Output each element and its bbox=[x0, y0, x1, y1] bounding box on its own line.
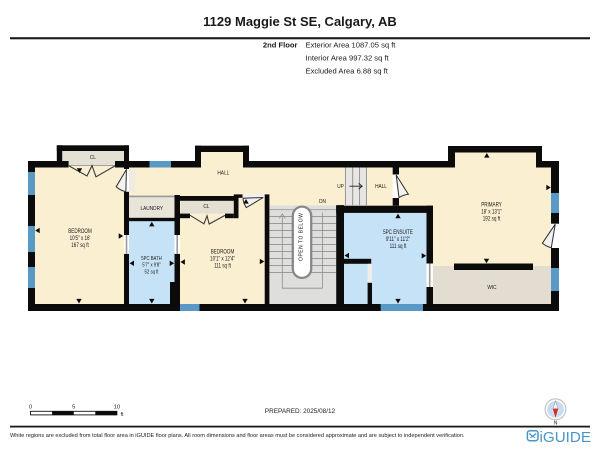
svg-text:CL: CL bbox=[90, 155, 96, 161]
svg-text:10: 10 bbox=[114, 405, 120, 411]
svg-text:N: N bbox=[554, 420, 558, 426]
svg-text:52 sq ft: 52 sq ft bbox=[145, 269, 159, 276]
svg-text:UP: UP bbox=[337, 184, 344, 190]
svg-text:iGUIDE: iGUIDE bbox=[540, 429, 591, 446]
svg-text:BEDROOM: BEDROOM bbox=[211, 249, 234, 256]
svg-text:192 sq ft: 192 sq ft bbox=[483, 216, 501, 223]
svg-text:0: 0 bbox=[29, 405, 32, 411]
svg-text:LAUNDRY: LAUNDRY bbox=[141, 206, 164, 212]
svg-text:HALL: HALL bbox=[375, 184, 387, 190]
svg-text:PREPARED: 2025/08/12: PREPARED: 2025/08/12 bbox=[265, 408, 336, 415]
svg-text:5: 5 bbox=[72, 405, 75, 411]
svg-text:10'5" x 16': 10'5" x 16' bbox=[70, 235, 91, 242]
svg-text:White regions are excluded fro: White regions are excluded from total fl… bbox=[10, 433, 465, 439]
svg-text:5PC BATH: 5PC BATH bbox=[141, 255, 162, 262]
svg-text:HALL: HALL bbox=[217, 170, 229, 176]
svg-text:1129 Maggie St SE, Calgary, AB: 1129 Maggie St SE, Calgary, AB bbox=[203, 14, 397, 29]
svg-text:WIC: WIC bbox=[487, 285, 497, 291]
svg-text:18' x 13'1": 18' x 13'1" bbox=[481, 209, 502, 216]
svg-text:PRIMARY: PRIMARY bbox=[481, 202, 502, 209]
svg-text:BEDROOM: BEDROOM bbox=[68, 228, 91, 235]
svg-text:Interior Area 997.32 sq ft: Interior Area 997.32 sq ft bbox=[306, 54, 390, 63]
svg-text:Exterior Area 1087.05 sq ft: Exterior Area 1087.05 sq ft bbox=[306, 41, 397, 50]
svg-text:10'1" x 12'4": 10'1" x 12'4" bbox=[210, 256, 235, 263]
svg-text:Excluded Area 6.88 sq ft: Excluded Area 6.88 sq ft bbox=[306, 67, 389, 76]
svg-text:111 sq ft: 111 sq ft bbox=[390, 244, 407, 251]
svg-text:9'11" x 11'2": 9'11" x 11'2" bbox=[386, 237, 410, 244]
svg-text:OPEN TO BELOW: OPEN TO BELOW bbox=[298, 213, 304, 261]
svg-text:DN: DN bbox=[319, 199, 326, 205]
svg-text:111 sq ft: 111 sq ft bbox=[214, 263, 231, 270]
svg-text:CL: CL bbox=[203, 204, 209, 210]
svg-text:5PC ENSUITE: 5PC ENSUITE bbox=[383, 230, 413, 237]
svg-text:167 sq ft: 167 sq ft bbox=[71, 242, 89, 249]
svg-text:ft: ft bbox=[121, 412, 124, 418]
svg-text:2nd Floor: 2nd Floor bbox=[263, 41, 298, 50]
svg-text:5'7" x 9'8": 5'7" x 9'8" bbox=[142, 262, 161, 269]
